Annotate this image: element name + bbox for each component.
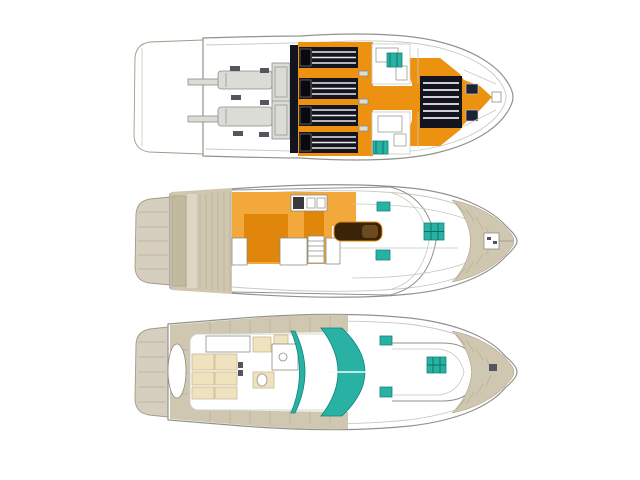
cleat — [260, 68, 269, 73]
foredeck-hatch-large — [424, 223, 444, 240]
anchor-windlass — [492, 92, 501, 102]
side-berth — [206, 336, 250, 352]
helm-console — [372, 44, 410, 84]
roof-hatch-panel — [299, 132, 358, 153]
aft-cabin — [168, 334, 348, 410]
helm-console — [372, 112, 410, 154]
galley-appliances — [291, 195, 327, 211]
deck-hatch — [380, 387, 392, 397]
deck-hatch — [466, 84, 478, 94]
yacht-deck-plans-image — [0, 0, 640, 480]
cleat — [230, 66, 240, 71]
sink — [279, 353, 287, 361]
flybridge-deck-view — [134, 34, 513, 160]
cleat — [233, 131, 243, 136]
flybridge-bulkhead — [290, 45, 298, 153]
cleat — [231, 95, 241, 100]
transom-door — [168, 344, 186, 398]
windlass-fitting — [489, 364, 497, 371]
cockpit-teak-deck — [171, 188, 232, 294]
transom-bench — [172, 196, 186, 286]
main-deck-view — [135, 185, 517, 298]
forward-hatch-large — [427, 357, 446, 373]
swim-platform — [134, 40, 203, 154]
yacht-deck-plans — [0, 0, 640, 480]
salon-sofa — [334, 222, 382, 241]
deck-hatch — [466, 110, 478, 121]
helm-seat — [387, 53, 402, 67]
foredeck-hatch — [376, 250, 390, 260]
cleat — [259, 132, 269, 137]
deck-hatch — [380, 336, 392, 345]
foredeck-hatch — [377, 202, 390, 211]
toilet — [257, 374, 267, 386]
helm-seat — [373, 141, 388, 154]
cleat — [260, 100, 269, 105]
bow-sunroof-panel — [420, 76, 462, 128]
roof-hatch-panel — [299, 105, 358, 126]
roof-hatch-panel — [299, 47, 358, 68]
companionway-stairs — [308, 236, 324, 263]
lower-deck-view — [135, 314, 517, 429]
roof-hatch-panel — [299, 78, 358, 99]
